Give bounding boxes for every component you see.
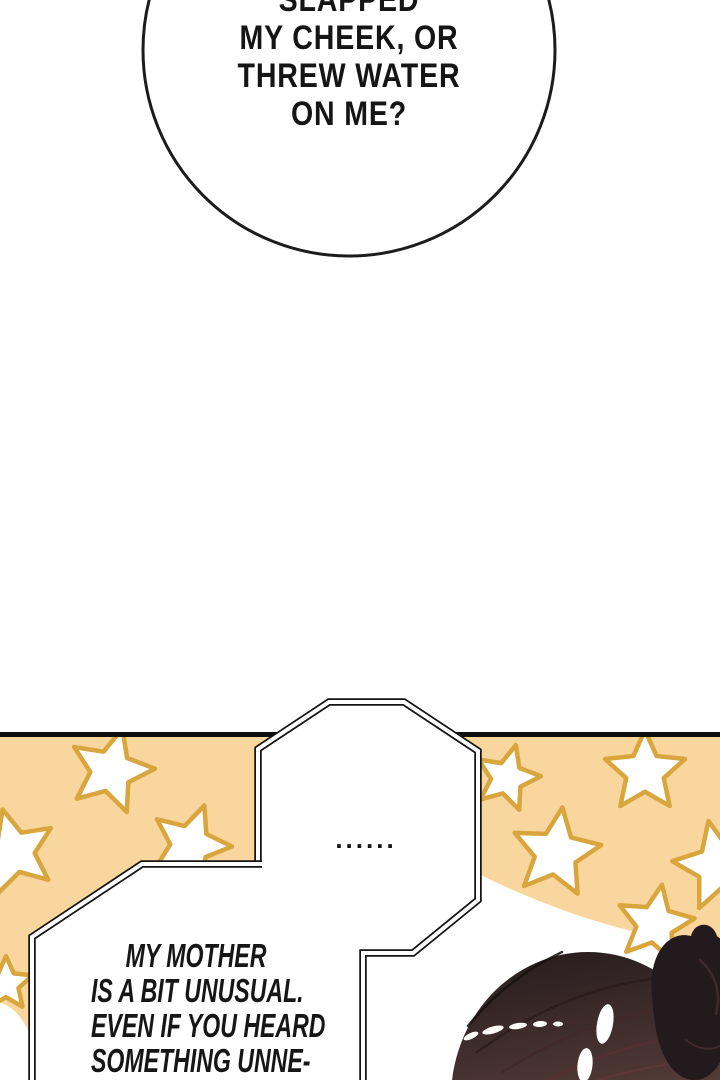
speech-line: IS A BIT UNUSUAL.	[91, 973, 301, 1008]
comic-page: SLAPPED MY CHEEK, OR THREW WATER ON ME? …	[0, 0, 720, 1080]
mother-bubble-text: MY MOTHER IS A BIT UNUSUAL. EVEN IF YOU …	[91, 938, 301, 1078]
speech-line: MY CHEEK, OR	[180, 19, 518, 57]
speech-line: SLAPPED	[180, 0, 518, 19]
speech-line: ON ME?	[180, 95, 518, 133]
top-bubble-text: SLAPPED MY CHEEK, OR THREW WATER ON ME?	[180, 0, 518, 133]
speech-line: SOMETHING UNNE-	[91, 1043, 301, 1078]
speech-line: EVEN IF YOU HEARD	[91, 1008, 301, 1043]
speech-line: MY MOTHER	[91, 938, 301, 973]
ellipsis-text: ......	[306, 824, 426, 854]
speech-line: THREW WATER	[180, 57, 518, 95]
comic-art	[0, 0, 720, 1080]
